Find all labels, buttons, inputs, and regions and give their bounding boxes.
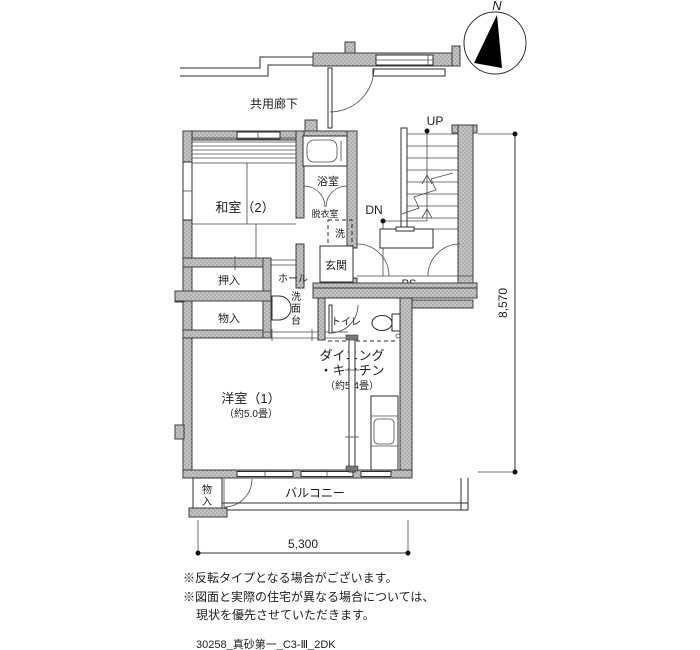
- balcony-label: バルコニー: [285, 486, 345, 500]
- dk-partition: [349, 338, 355, 472]
- corridor-label: 共用廊下: [250, 96, 298, 111]
- plan-id: 30258_真砂第一_C3-Ⅲ_2DK: [196, 637, 336, 650]
- north-label: N: [492, 0, 502, 13]
- entrance-door-swing: [330, 68, 374, 112]
- hall: ホール 洗 面 台: [272, 273, 308, 327]
- note-line-2: ※図面と実際の住宅が異なる場合については、: [183, 589, 434, 604]
- notes-block: ※反転タイプとなる場合がございます。 ※図面と実際の住宅が異なる場合については、…: [183, 570, 434, 650]
- washstand-label-char1: 洗: [291, 291, 301, 303]
- toilet-bowl-icon: [372, 316, 392, 331]
- dressing-label: 脱衣室: [311, 208, 338, 219]
- japanese-room2-label: 和室（2）: [215, 200, 274, 215]
- oshiire-label: 押入: [218, 273, 240, 287]
- floor-plan-drawing: N 共用廊下 UP: [0, 0, 700, 650]
- dimension-height: 8,570: [496, 288, 510, 318]
- floor-plan-page: N 共用廊下 UP: [0, 0, 700, 650]
- dimension-width: 5,300: [288, 537, 318, 551]
- landing-door-left-swing: [357, 244, 389, 276]
- storage-balcony-char1: 物: [202, 483, 212, 496]
- north-compass: N: [464, 0, 526, 74]
- common-corridor: 共用廊下: [180, 42, 460, 128]
- bath-door-right: [326, 186, 347, 207]
- storage-balcony-char2: 入: [202, 497, 212, 508]
- toilet-room: トイレ: [328, 305, 400, 341]
- washstand-label-char2: 面: [291, 304, 301, 315]
- western-room1-label: 洋室（1）: [221, 391, 280, 406]
- western-room1-size: （約5.0畳）: [224, 407, 278, 420]
- washstand-label-char3: 台: [291, 314, 301, 327]
- toilet-tank-icon: [392, 314, 400, 331]
- understair-alcove: [380, 229, 433, 248]
- storage-hall-label: 物入: [218, 311, 240, 325]
- bath-door-left: [304, 186, 325, 207]
- bath-block: 浴室 脱衣室 洗 玄関: [303, 136, 353, 282]
- stair-break-line: [402, 173, 453, 214]
- toilet-label: トイレ: [331, 317, 361, 328]
- dn-label: DN: [365, 203, 382, 217]
- bath-label: 浴室: [317, 174, 339, 188]
- stairwell: UP DN PS: [357, 114, 477, 298]
- up-label: UP: [427, 114, 444, 128]
- washstand-basin: [272, 296, 291, 320]
- bathtub: [303, 136, 347, 166]
- dining-kitchen: ダイニング ・キッチン （約5.4畳）: [319, 348, 398, 470]
- note-line-3: 現状を優先させていただきます。: [196, 608, 375, 622]
- unit-walls: [175, 120, 477, 478]
- entrance-label: 玄関: [325, 258, 347, 272]
- balcony: 物 入 バルコニー: [189, 478, 468, 517]
- landing-door-right-swing: [428, 244, 460, 276]
- washer-label: 洗: [335, 228, 345, 240]
- hall-label: ホール: [278, 273, 308, 285]
- entrance-door-leaf: [328, 68, 332, 128]
- north-arrow: [474, 15, 502, 68]
- note-line-1: ※反転タイプとなる場合がございます。: [183, 570, 397, 585]
